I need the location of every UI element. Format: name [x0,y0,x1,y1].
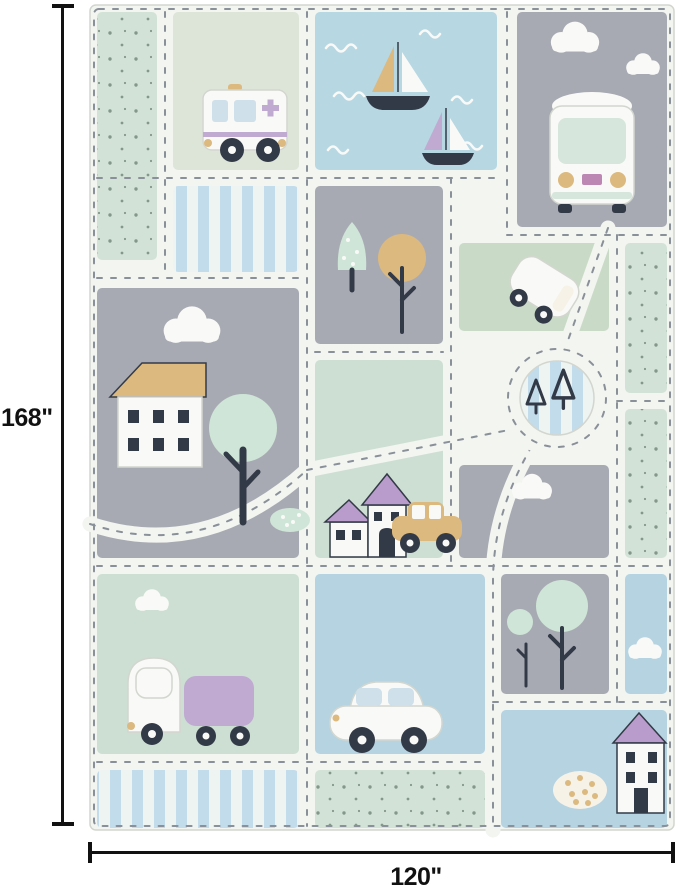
height-dimension-line [61,5,64,825]
width-dimension-cap-left [88,842,92,863]
width-dimension-cap-right [671,842,675,863]
tan-bush-icon [553,771,607,809]
product-image: 168" 120" [0,0,679,891]
roundabout [498,339,616,457]
height-dimension-cap-bottom [52,822,74,826]
height-dimension-cap-top [52,4,74,8]
bus-rear-icon [550,92,634,213]
width-dimension-line [89,851,674,854]
patch-blue-right [625,574,667,694]
height-dimension-label: 168" [1,404,53,433]
width-dimension-label: 120" [346,863,486,891]
patch-stripes-upper [173,186,299,272]
rug-image [0,0,679,891]
mint-bush-icon [270,508,310,532]
ambulance-icon [203,84,287,162]
patch-stripes-bottom [97,770,299,828]
